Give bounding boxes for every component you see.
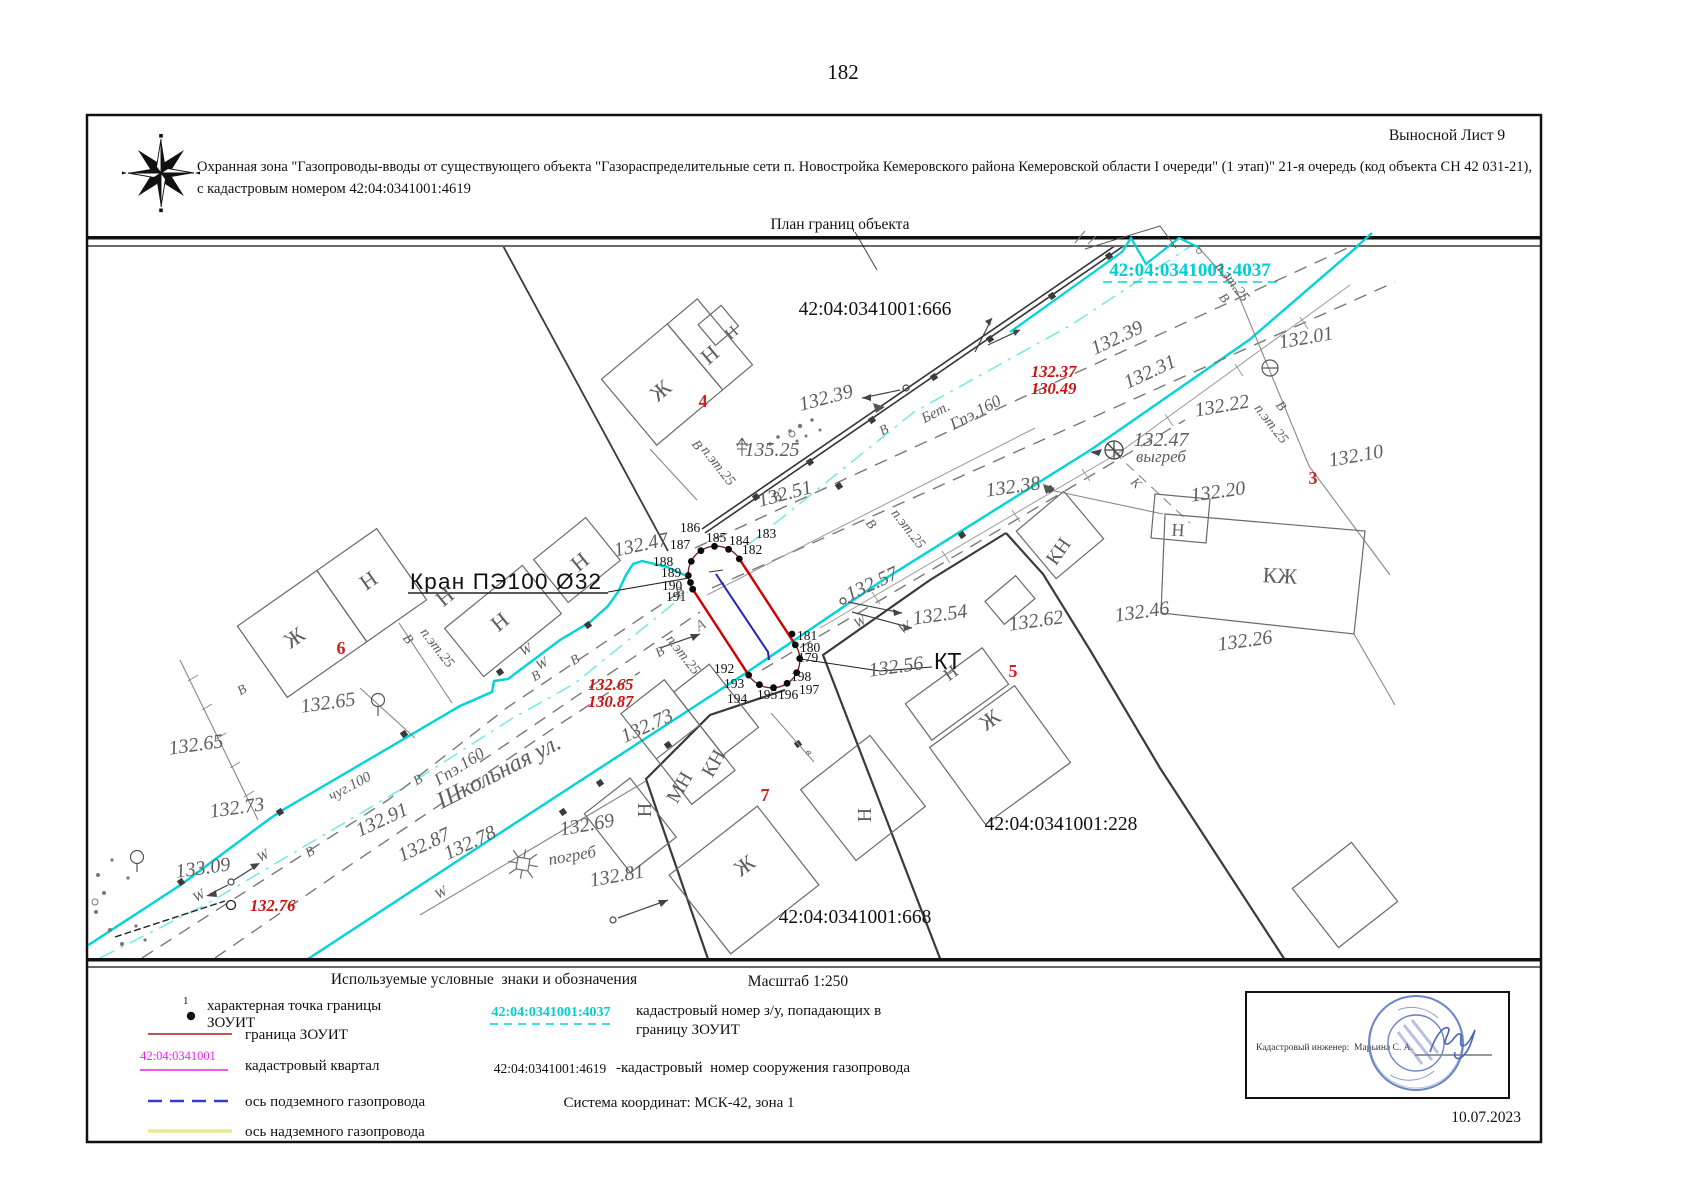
svg-text:В: В <box>302 843 317 860</box>
svg-text:132.46: 132.46 <box>1113 597 1171 626</box>
svg-text:Система координат: МСК-42, зон: Система координат: МСК-42, зона 1 <box>563 1095 794 1111</box>
svg-text:4: 4 <box>699 391 708 411</box>
svg-text:-кадастровый номер сооружения: -кадастровый номер сооружения газопровод… <box>616 1060 910 1076</box>
svg-text:кадастровый номер з/у, попадаю: кадастровый номер з/у, попадающих в <box>636 1003 881 1019</box>
svg-text:42:04:0341001:4619: 42:04:0341001:4619 <box>494 1061 607 1076</box>
svg-text:погреб: погреб <box>547 842 598 869</box>
svg-text:границу ЗОУИТ: границу ЗОУИТ <box>636 1022 740 1038</box>
svg-text:выгреб: выгреб <box>1136 447 1186 466</box>
svg-text:133.09: 133.09 <box>174 853 232 882</box>
svg-text:КН: КН <box>697 746 730 781</box>
svg-text:В: В <box>652 643 667 660</box>
svg-text:5: 5 <box>1009 661 1018 681</box>
svg-text:198: 198 <box>791 669 812 684</box>
svg-text:185: 185 <box>706 530 727 545</box>
svg-text:132.31: 132.31 <box>1120 350 1179 393</box>
svg-text:135.25: 135.25 <box>745 439 800 461</box>
svg-text:Ж: Ж <box>974 704 1005 736</box>
svg-text:42:04:0341001:668: 42:04:0341001:668 <box>779 907 932 928</box>
svg-text:6: 6 <box>337 638 346 658</box>
svg-text:196: 196 <box>778 687 799 702</box>
svg-text:чуг.100: чуг.100 <box>326 769 374 805</box>
svg-text:W: W <box>254 846 273 865</box>
svg-text:К: К <box>1127 474 1145 492</box>
svg-text:Масштаб 1:250: Масштаб 1:250 <box>748 973 849 990</box>
svg-text:Бет.: Бет. <box>918 399 953 428</box>
svg-text:Ж: Ж <box>279 621 310 653</box>
svg-text:В: В <box>1216 290 1233 306</box>
svg-text:195: 195 <box>757 687 778 702</box>
svg-text:42:04:0341001: 42:04:0341001 <box>140 1049 216 1063</box>
svg-text:42:04:0341001:666: 42:04:0341001:666 <box>799 299 952 320</box>
svg-text:3: 3 <box>1309 468 1318 488</box>
svg-text:Ж: Ж <box>729 849 760 881</box>
svg-text:В: В <box>876 421 891 438</box>
svg-text:ось надземного газопровода: ось надземного газопровода <box>245 1124 425 1140</box>
svg-text:п.эт.25: п.эт.25 <box>417 625 458 671</box>
svg-text:182: 182 <box>827 60 859 84</box>
svg-text:ось подземного газопровода: ось подземного газопровода <box>245 1094 426 1110</box>
svg-text:Н: Н <box>722 323 742 344</box>
svg-text:132.65: 132.65 <box>299 688 357 717</box>
svg-text:132.91: 132.91 <box>352 798 411 841</box>
svg-text:W: W <box>517 640 536 659</box>
svg-text:197: 197 <box>799 682 820 697</box>
svg-text:132.26: 132.26 <box>1216 626 1274 655</box>
svg-text:Н: Н <box>696 340 724 369</box>
svg-text:Н: Н <box>355 566 382 596</box>
svg-text:132.39: 132.39 <box>1087 316 1146 359</box>
svg-text:Н: Н <box>486 607 514 636</box>
svg-text:187: 187 <box>670 537 691 552</box>
svg-text:132.57: 132.57 <box>842 562 902 606</box>
svg-text:КН: КН <box>1042 534 1076 569</box>
svg-text:7: 7 <box>761 785 770 805</box>
svg-text:132.38: 132.38 <box>984 472 1042 501</box>
svg-text:1: 1 <box>183 995 189 1007</box>
svg-text:182: 182 <box>742 542 762 557</box>
svg-text:183: 183 <box>756 526 777 541</box>
svg-text:План границ объекта: План границ объекта <box>770 216 909 233</box>
svg-text:10.07.2023: 10.07.2023 <box>1451 1109 1521 1126</box>
svg-text:КЖ: КЖ <box>1262 562 1298 589</box>
svg-text:W: W <box>851 612 870 631</box>
svg-text:132.10: 132.10 <box>1327 440 1385 471</box>
svg-text:132.22: 132.22 <box>1193 390 1251 421</box>
svg-text:132.39: 132.39 <box>797 380 856 415</box>
svg-text:характерная точка границы: характерная точка границы <box>207 998 381 1014</box>
svg-text:132.69: 132.69 <box>558 809 616 840</box>
svg-text:132.81: 132.81 <box>588 860 646 891</box>
svg-text:179: 179 <box>798 650 819 665</box>
svg-text:132.54: 132.54 <box>911 600 969 629</box>
svg-text:132.56: 132.56 <box>867 652 925 681</box>
svg-text:132.20: 132.20 <box>1189 477 1247 506</box>
svg-text:W: W <box>190 886 209 905</box>
svg-text:130.87: 130.87 <box>588 692 634 711</box>
svg-text:42:04:0341001:228: 42:04:0341001:228 <box>985 814 1138 835</box>
svg-text:132.01: 132.01 <box>1277 322 1335 353</box>
svg-text:194: 194 <box>727 691 748 706</box>
svg-text:с кадастровым номером 42:04:03: с кадастровым номером 42:04:0341001:4619 <box>197 181 471 197</box>
svg-text:Н: Н <box>854 808 876 822</box>
svg-text:п.эт.25: п.эт.25 <box>663 632 704 678</box>
svg-text:кадастровый квартал: кадастровый квартал <box>245 1058 380 1074</box>
svg-text:42:04:0341001:4037: 42:04:0341001:4037 <box>1109 260 1271 281</box>
svg-text:W: W <box>432 883 451 902</box>
svg-text:Н: Н <box>634 803 656 817</box>
svg-text:132.62: 132.62 <box>1007 606 1065 635</box>
svg-text:А: А <box>692 616 710 635</box>
svg-text:132.78: 132.78 <box>440 821 499 864</box>
svg-text:Ж: Ж <box>645 374 676 406</box>
svg-text:Н: Н <box>1171 520 1185 541</box>
svg-text:п.эт.25: п.эт.25 <box>698 443 739 489</box>
svg-text:п.эт.25: п.эт.25 <box>888 506 929 552</box>
svg-text:132.65: 132.65 <box>167 730 225 759</box>
svg-text:42:04:0341001:4037: 42:04:0341001:4037 <box>492 1005 611 1020</box>
svg-text:В: В <box>400 631 417 647</box>
svg-text:Гпэ.160: Гпэ.160 <box>945 391 1004 434</box>
svg-text:В: В <box>234 681 249 698</box>
svg-text:Охранная зона "Газопроводы-вво: Охранная зона "Газопроводы-вводы от суще… <box>197 159 1532 175</box>
svg-text:В: В <box>863 516 880 532</box>
svg-text:186: 186 <box>680 520 701 535</box>
svg-text:граница ЗОУИТ: граница ЗОУИТ <box>245 1027 348 1043</box>
svg-text:130.49: 130.49 <box>1031 379 1076 398</box>
svg-text:192: 192 <box>714 661 734 676</box>
svg-text:132.76: 132.76 <box>250 896 296 915</box>
svg-text:193: 193 <box>724 676 745 691</box>
svg-text:В: В <box>1273 398 1290 414</box>
svg-text:Используемые условные знаки и: Используемые условные знаки и обозначени… <box>331 971 637 988</box>
svg-text:Выносной Лист 9: Выносной Лист 9 <box>1389 127 1506 144</box>
